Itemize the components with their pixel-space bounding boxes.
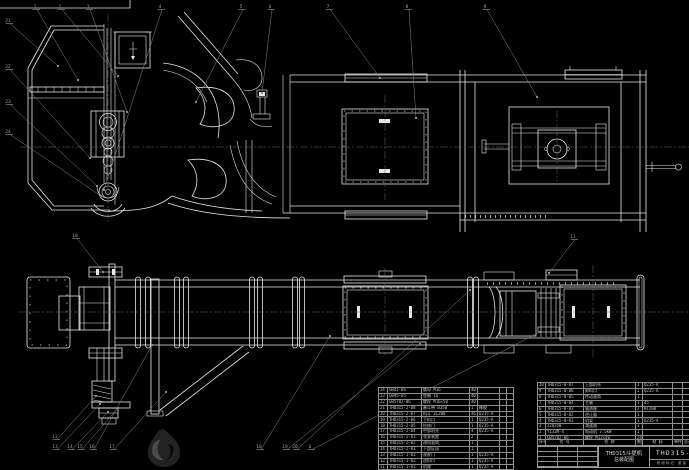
sheet-border-corner — [0, 0, 130, 8]
balloon-number: 6 — [309, 444, 312, 450]
balloon-number: 19 — [282, 444, 288, 450]
balloon-callouts: 1234567892122232410111213141516171819206 — [5, 4, 578, 450]
watermark-flame — [148, 429, 180, 467]
bom-cell: 1 — [470, 464, 478, 470]
balloon-number: 12 — [52, 434, 58, 440]
product-cell: THD315斗提机 总装配图 — [598, 447, 650, 467]
balloon-number: 6 — [269, 4, 272, 10]
balloon-number: 9 — [484, 4, 487, 10]
balloon-number: 22 — [5, 64, 11, 70]
balloon-number: 24 — [5, 129, 11, 135]
bom-cell: 单件 — [673, 440, 683, 446]
plan-head — [484, 270, 626, 353]
balloon-number: 21 — [5, 18, 11, 24]
tail-assembly — [27, 264, 122, 381]
bom-table-right: 10THD315-0-07上部机壳1Q235-A9THD315-0-06卸料口1… — [537, 382, 689, 442]
flange-rings — [136, 277, 479, 348]
boot-casing — [28, 24, 125, 216]
bucket-shapes — [188, 60, 262, 199]
balloon-number: 14 — [67, 444, 73, 450]
bom-cell: 名 称 — [584, 440, 636, 446]
balloon-number: 15 — [77, 444, 83, 450]
casing-flange-ring — [136, 277, 141, 348]
bom-cell: THD315-1-01 — [388, 464, 422, 470]
drive-assembly — [482, 107, 609, 184]
transition-chute — [108, 12, 290, 218]
bom-row: 序号代 号名 称数量材 料单件总计备注 — [538, 440, 689, 446]
title-block: THD315斗提机 总装配图 THD315-00 阶段标记 重量 比例 — [537, 446, 689, 468]
balloon-number: 1 — [34, 4, 37, 10]
balloon-number: 7 — [327, 4, 330, 10]
casing-flange-ring — [468, 277, 473, 348]
balloon-number: 10 — [72, 233, 78, 239]
bom-cell: 机座 — [422, 464, 470, 470]
drawing-number: THD315-00 — [650, 447, 689, 459]
casing-flange-ring — [175, 277, 180, 348]
casing-flange-ring — [146, 277, 151, 348]
bom-row: 11THD315-1-01机座1Q235-A — [379, 464, 514, 470]
balloon-number: 20 — [292, 444, 298, 450]
bolt-joint-detail — [250, 90, 272, 127]
bom-cell: 总计 — [683, 440, 689, 446]
support-braces — [147, 279, 249, 416]
balloon-number: 13 — [52, 444, 58, 450]
drawing-cell: THD315-00 阶段标记 重量 比例 — [650, 447, 689, 467]
balloon-number: 16 — [89, 444, 95, 450]
title-info-row: 阶段标记 重量 比例 — [650, 459, 689, 467]
middle-casing — [283, 74, 462, 219]
balloon-number: 8 — [406, 4, 409, 10]
bom-cell: Q235-A — [478, 464, 500, 470]
balloon-number: 3 — [87, 4, 90, 10]
centerlines — [18, 14, 689, 358]
casing-flange-ring — [293, 277, 298, 348]
bom-cell: 代 号 — [546, 440, 584, 446]
bom-header-row: 序号代 号名 称数量材 料单件总计备注 — [537, 439, 689, 446]
bom-table-left: 24GB41-86螺母 M164023GB95-85垫圈 164022GB578… — [378, 387, 513, 470]
inlet-chute — [113, 32, 152, 68]
bom-cell: 序号 — [538, 440, 546, 446]
balloon-number: 17 — [109, 444, 115, 450]
balloon-number: 4 — [159, 4, 162, 10]
casing-flange-ring — [250, 277, 255, 348]
balloon-number: 2 — [59, 4, 62, 10]
cad-sheet: { "title_block": { "model": "THD315斗提机",… — [0, 0, 689, 468]
takeup-screw — [92, 348, 130, 424]
casing-flange-ring — [184, 277, 189, 348]
signature-grid — [538, 447, 598, 467]
bom-cell — [500, 464, 507, 470]
casing-flange-ring — [258, 277, 263, 348]
bom-cell — [507, 464, 514, 470]
product-name: 总装配图 — [614, 457, 634, 463]
balloon-number: 23 — [5, 99, 11, 105]
bom-cell: 数量 — [636, 440, 643, 446]
balloon-number: 18 — [256, 444, 262, 450]
bom-cell: 材 料 — [643, 440, 673, 446]
balloon-number: 5 — [240, 4, 243, 10]
bom-cell: 11 — [379, 464, 388, 470]
backstop-rod — [646, 162, 682, 172]
casing-flange-ring — [300, 277, 305, 348]
casing-flange-ring — [474, 277, 479, 348]
balloon-number: 11 — [570, 234, 576, 240]
